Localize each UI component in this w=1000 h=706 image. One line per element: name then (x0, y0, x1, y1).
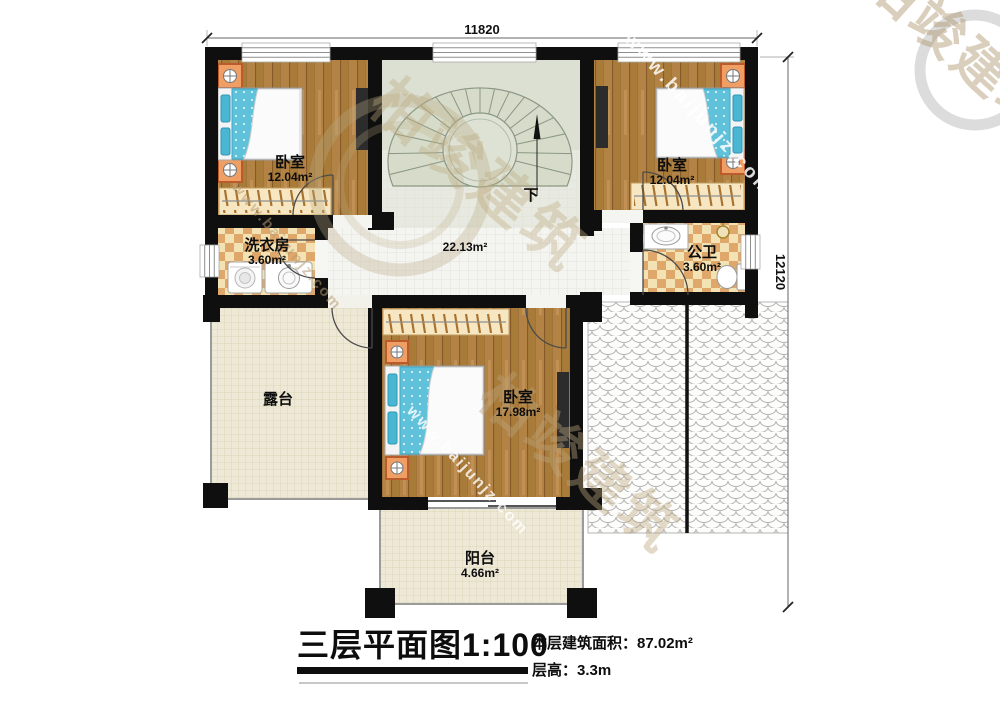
nightstand-icon (218, 64, 242, 88)
window-icon (433, 43, 536, 62)
wall-stub (580, 292, 602, 322)
stairs-direction-label: 下 (523, 184, 538, 205)
page-title: 三层平面图1:100 (297, 620, 549, 666)
room-label-laundry: 洗衣房 3.60m² (244, 238, 289, 268)
wall-right (745, 47, 758, 318)
bed-icon (656, 88, 744, 158)
floor-plan-drawing (0, 0, 1000, 706)
nightstand-icon (386, 457, 408, 479)
room-label-hallway-area: 22.13m² (443, 240, 488, 254)
wardrobe-icon (383, 309, 509, 335)
room-label-bedroom-top-left: 卧室 12.04m² (268, 155, 313, 185)
wall-stub (580, 210, 602, 231)
nightstand-icon (721, 64, 745, 88)
floor-area-label: 本层建筑面积：87.02m² (532, 632, 693, 653)
wall-bedroomC-left (368, 295, 382, 510)
nightstand-icon (218, 158, 242, 182)
wall-bedroomC-bottom (556, 497, 583, 510)
window-icon (200, 245, 219, 277)
wall-bedroomC-bottom (368, 497, 428, 510)
room-label-balcony: 阳台 4.66m² (461, 551, 499, 581)
wall-stairhall-left (368, 60, 382, 228)
tv-icon (596, 86, 608, 148)
nightstand-icon (386, 341, 408, 363)
room-label-bedroom-center: 卧室 17.98m² (496, 390, 541, 420)
wall-bedroomC-right (570, 295, 583, 510)
terrace-post (203, 483, 228, 508)
bathroom-sink-icon (644, 224, 688, 249)
balcony-pillar (365, 588, 395, 618)
floor-plan-page: 11820 12120 卧室 12.04m² 卧室 12.04m² 洗衣房 3.… (0, 0, 1000, 706)
room-label-bedroom-top-right: 卧室 12.04m² (650, 158, 695, 188)
window-icon (618, 43, 740, 62)
tv-icon (557, 372, 569, 448)
wall-bathroom-bottom (630, 292, 758, 305)
bed-icon (385, 366, 484, 455)
balcony-pillar (567, 588, 597, 618)
dimension-right-label: 12120 (772, 244, 788, 300)
bed-icon (218, 88, 302, 160)
room-label-terrace: 露台 (263, 388, 293, 409)
wall-stairhall-right (580, 60, 594, 236)
floor-height-label: 层高：3.3m (532, 659, 611, 680)
title-underline-thin (299, 682, 528, 684)
room-label-bathroom: 公卫 3.60m² (683, 245, 721, 275)
window-icon (242, 43, 330, 62)
wall-stub (745, 292, 758, 318)
terrace-post (203, 295, 220, 322)
dimension-top-label: 11820 (452, 22, 512, 37)
title-underline-bar (297, 667, 528, 674)
sliding-door (428, 501, 556, 506)
wall-stub (580, 488, 602, 510)
window-icon (741, 235, 760, 269)
